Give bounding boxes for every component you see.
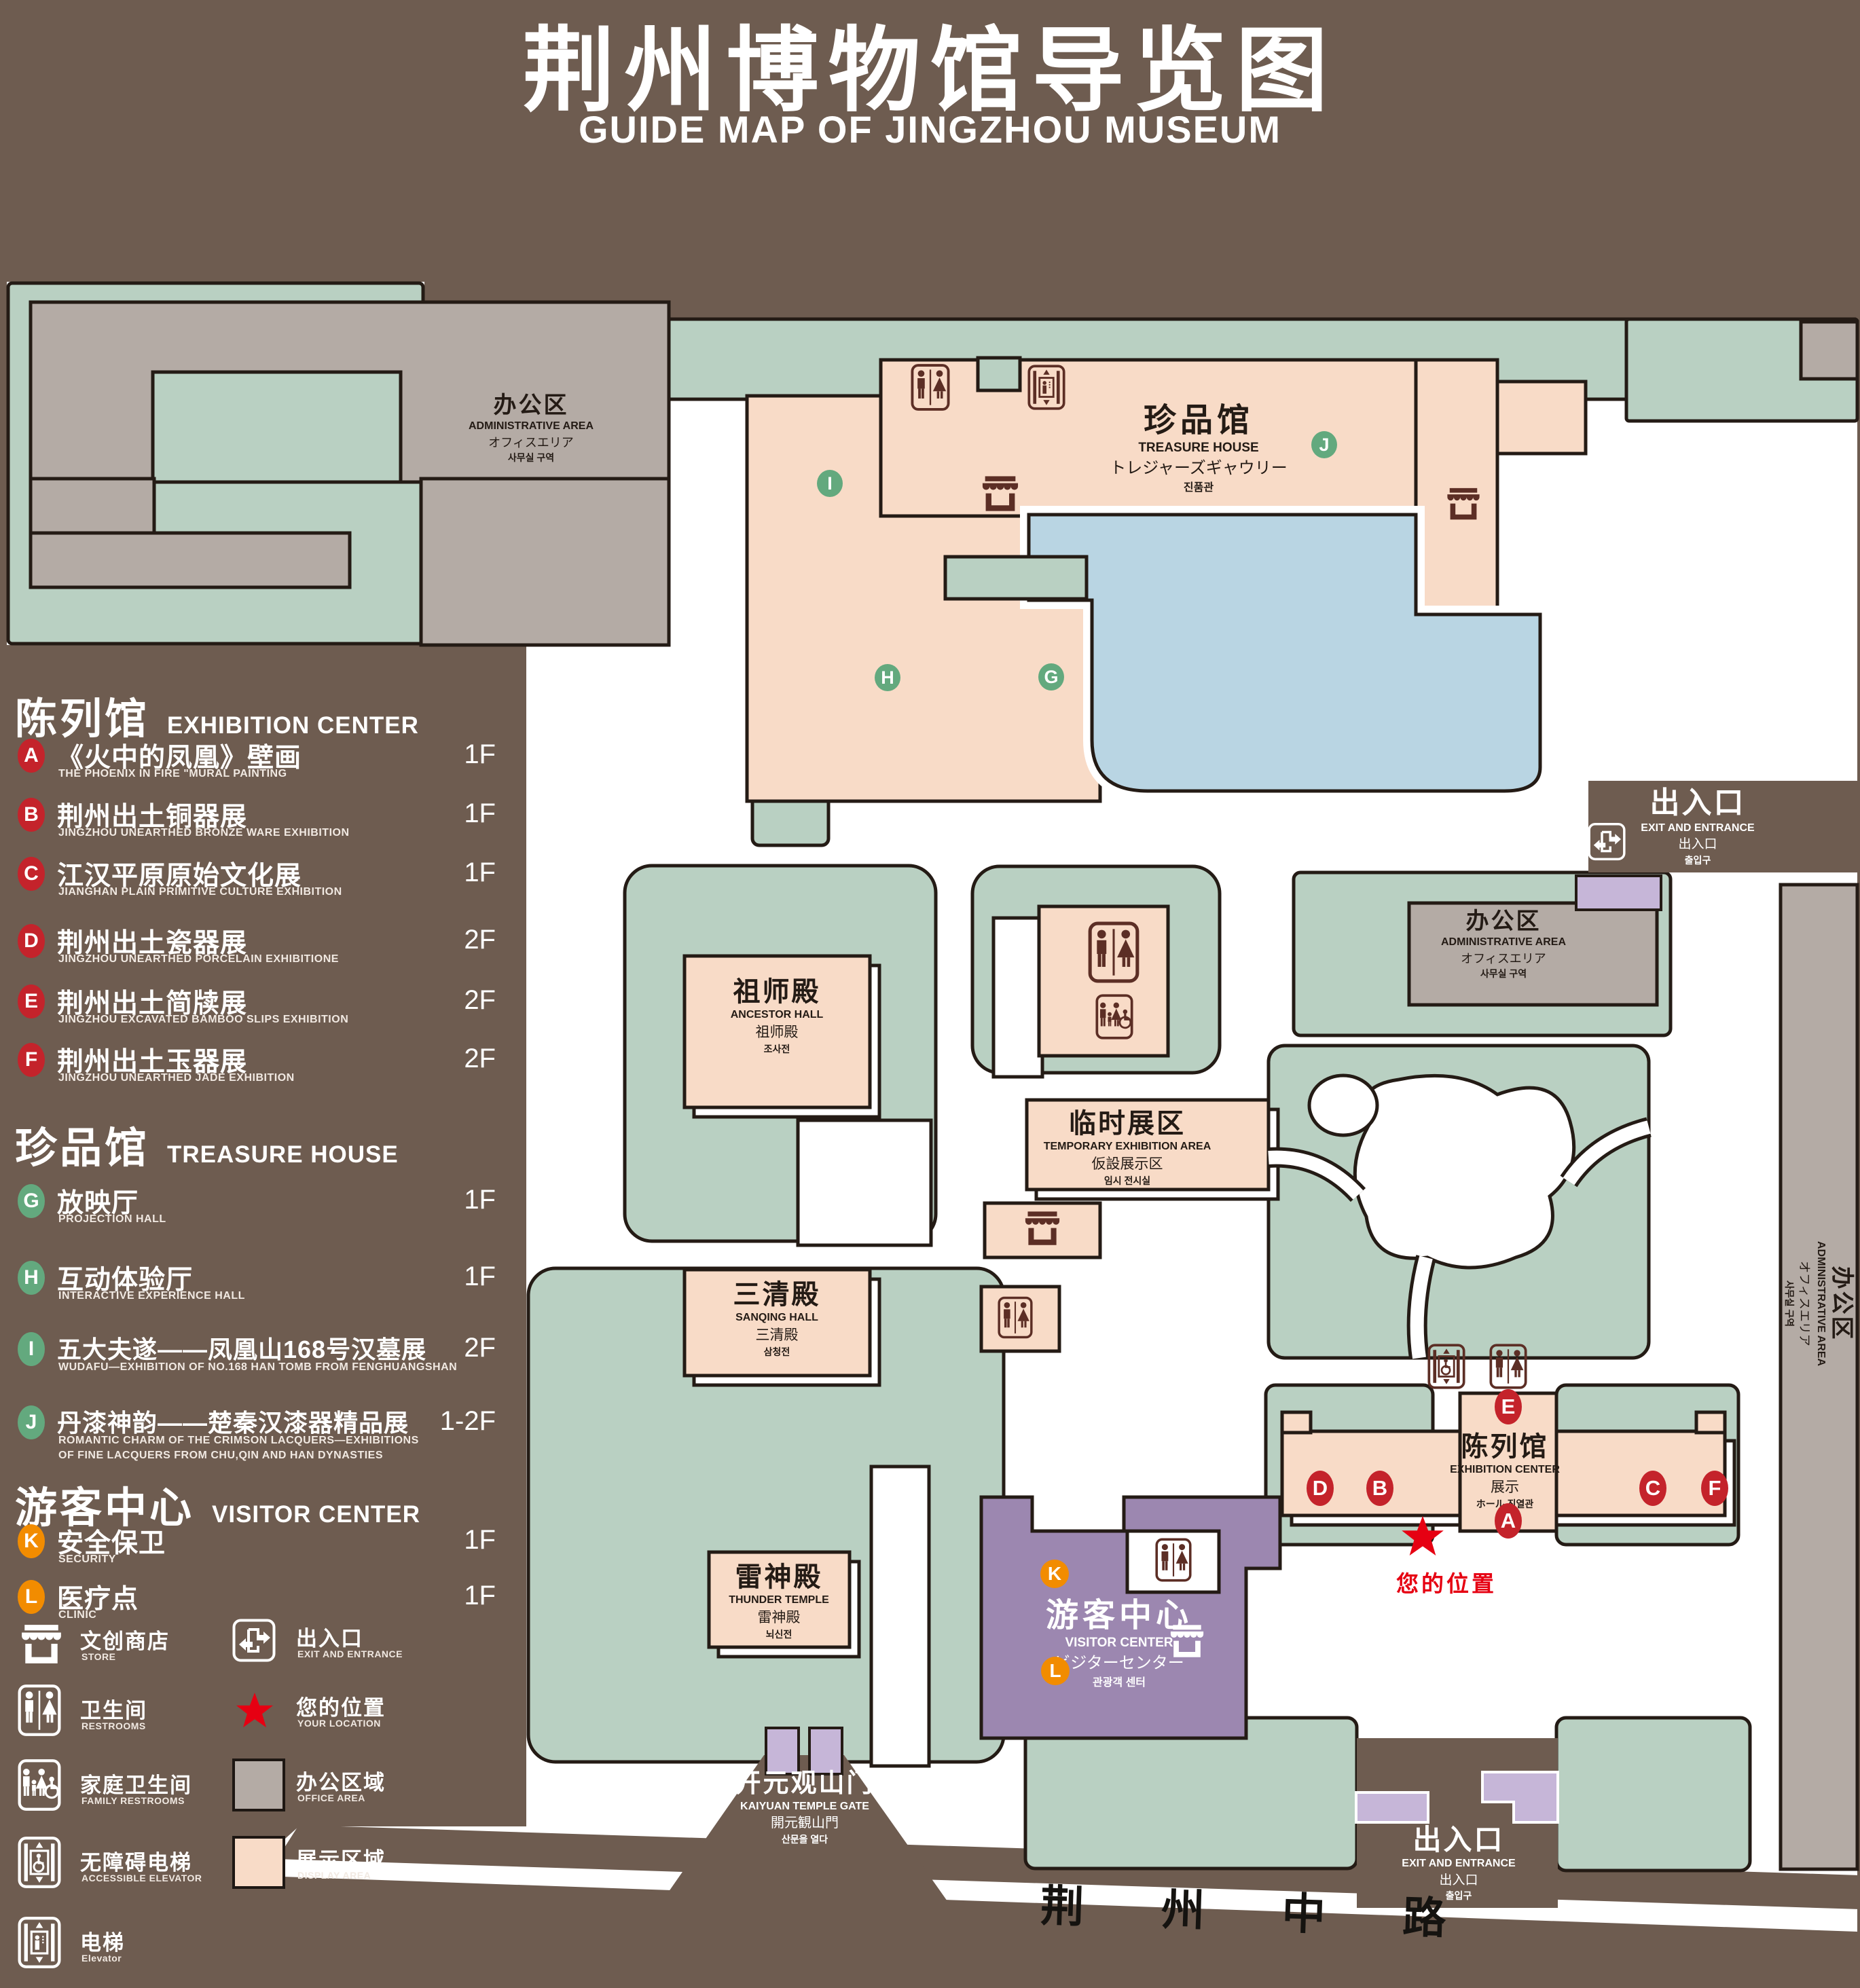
- lawn-south-a: [1025, 1718, 1357, 1869]
- building-treasure-east-arm: [1497, 382, 1586, 454]
- legend-display-label: 展示区域: [296, 1843, 386, 1873]
- badge-a: A: [18, 739, 45, 773]
- treasure-top-notch: [978, 358, 1020, 390]
- label-admin-nw: 办公区ADMINISTRATIVE AREA オフィスエリア사무실 구역: [469, 392, 594, 464]
- store-icon: [1445, 487, 1482, 524]
- restroom-icon: [1155, 1538, 1192, 1586]
- office-area-swatch: [232, 1759, 285, 1811]
- badge-l: L: [18, 1580, 45, 1614]
- store-icon: [980, 476, 1021, 516]
- legend-accessible-label: 无障碍电梯: [80, 1845, 192, 1876]
- legend-exit-label: 出入口: [296, 1621, 363, 1652]
- restroom-icon: [1489, 1344, 1527, 1393]
- map-marker-k: K: [1040, 1560, 1069, 1588]
- legend-section-treasure: 珍品馆TREASURE HOUSE: [15, 1113, 399, 1175]
- legend-family-label: 家庭卫生间: [80, 1768, 192, 1799]
- restroom-icon: [998, 1296, 1033, 1343]
- legend-store-label: 文创商店: [80, 1624, 170, 1655]
- map-marker-j: J: [1311, 431, 1337, 458]
- map-marker-b: B: [1366, 1471, 1393, 1506]
- road-strip-lower: [241, 1926, 1860, 1988]
- store-icon: [1168, 1625, 1206, 1662]
- map-marker-h: H: [875, 664, 900, 691]
- map-marker-f: F: [1701, 1471, 1728, 1506]
- guide-map-poster: 荆州博物馆导览图 GUIDE MAP OF JINGZHOU MUSEUM: [0, 0, 1860, 1988]
- map-marker-g: G: [1038, 663, 1064, 691]
- label-exit-east: 出入口 EXIT AND ENTRANCE 出入口 출입구: [1641, 786, 1754, 867]
- label-sanqing-hall: 三清殿SANQING HALL 三清殿삼청전: [733, 1279, 821, 1359]
- restroom-icon: [18, 1684, 61, 1740]
- map-marker-i: I: [817, 470, 843, 497]
- map-marker-e: E: [1495, 1389, 1522, 1424]
- badge-d: D: [18, 924, 45, 958]
- legend-elevator-label: 电梯: [80, 1926, 125, 1956]
- restroom-icon: [1088, 921, 1139, 987]
- label-treasure-house: 珍品馆TREASURE HOUSE トレジャーズギャウリー진품관: [1110, 402, 1288, 496]
- elevator-icon: [18, 1916, 61, 1972]
- label-kaiyuan-gate: 开元观山门 KAIYUAN TEMPLE GATE 開元観山門 산문을 열다: [735, 1769, 874, 1847]
- exit-south-pad-1: [1356, 1792, 1428, 1822]
- badge-g: G: [18, 1184, 45, 1218]
- badge-j: J: [18, 1405, 45, 1439]
- exit-east-pad: [1576, 876, 1661, 910]
- label-temporary-exhibition: 临时展区TEMPORARY EXHIBITION AREA 仮設展示区임시 전시…: [1044, 1108, 1211, 1188]
- label-admin-east: 办公区ADMINISTRATIVE AREA オフィスエリア사무실 구역: [1783, 1241, 1855, 1366]
- legend-restroom-label: 卫生间: [80, 1693, 147, 1724]
- badge-e: E: [18, 984, 45, 1018]
- map-marker-a: A: [1495, 1503, 1522, 1539]
- store-icon: [1023, 1211, 1062, 1250]
- site-map-canvas: [0, 0, 1860, 1988]
- your-location-star-icon: [1400, 1515, 1445, 1562]
- your-location-label: 您的位置: [1396, 1566, 1497, 1598]
- badge-k: K: [18, 1524, 45, 1558]
- gate-pillar-1: [766, 1728, 799, 1774]
- family-restroom-icon: [1095, 993, 1133, 1044]
- badge-i: I: [18, 1332, 45, 1366]
- badge-f: F: [18, 1043, 45, 1077]
- path-corridor-2: [871, 1467, 929, 1766]
- label-thunder-temple: 雷神殿THUNDER TEMPLE 雷神殿뇌신전: [729, 1562, 829, 1642]
- elevator-icon: [1027, 364, 1065, 415]
- legend-office-label: 办公区域: [296, 1765, 386, 1796]
- gate-pillar-2: [809, 1728, 842, 1774]
- label-ancestor-hall: 祖师殿ANCESTOR HALL 祖师殿조사전: [731, 976, 824, 1056]
- building-admin-nw-column: [421, 479, 669, 645]
- your-location-star-icon: [235, 1692, 274, 1733]
- badge-h: H: [18, 1261, 45, 1295]
- label-exhibition-center: 陈列馆EXHIBITION CENTER 展示ホール 진열관: [1450, 1431, 1560, 1511]
- map-marker-d: D: [1307, 1471, 1334, 1506]
- building-corner-ne: [1801, 322, 1857, 379]
- building-admin-east: [1781, 885, 1857, 1869]
- accessible-elevator-icon: [18, 1836, 61, 1892]
- store-icon: [19, 1624, 64, 1668]
- exit-icon: [1588, 823, 1626, 864]
- exit-icon: [232, 1619, 276, 1665]
- building-admin-nw-bottom: [31, 533, 350, 587]
- accessible-elevator-icon: [1427, 1344, 1465, 1393]
- restroom-icon: [911, 364, 950, 415]
- badge-b: B: [18, 798, 45, 832]
- family-restroom-icon: [18, 1759, 61, 1815]
- badge-c: C: [18, 857, 45, 891]
- display-area-swatch: [232, 1836, 285, 1889]
- label-admin-mid: 办公区ADMINISTRATIVE AREA オフィスエリア사무실 구역: [1441, 908, 1566, 980]
- map-marker-c: C: [1639, 1471, 1666, 1506]
- path-corridor-1: [798, 1120, 931, 1245]
- lawn-south-b: [1556, 1718, 1750, 1871]
- lake-island-strip: [945, 557, 1087, 599]
- path-corridor-3: [993, 918, 1042, 1077]
- map-marker-l: L: [1041, 1657, 1070, 1685]
- legend-location-label: 您的位置: [296, 1691, 386, 1721]
